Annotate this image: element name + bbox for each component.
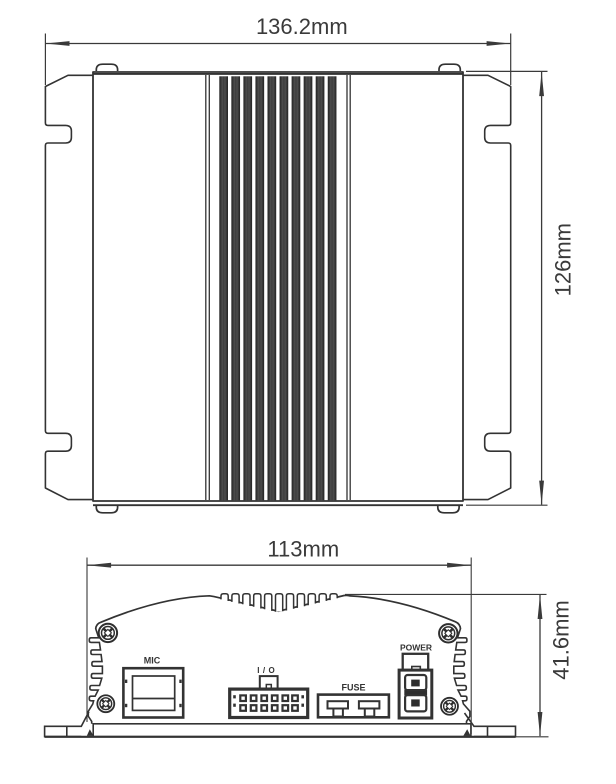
svg-text:I / O: I / O: [257, 666, 275, 675]
svg-text:113mm: 113mm: [267, 537, 339, 562]
svg-text:126mm: 126mm: [551, 223, 576, 296]
svg-text:MIC: MIC: [144, 656, 161, 666]
svg-text:136.2mm: 136.2mm: [256, 14, 348, 39]
svg-text:41.6mm: 41.6mm: [549, 600, 574, 679]
svg-text:FUSE: FUSE: [341, 683, 365, 693]
svg-text:POWER: POWER: [400, 643, 432, 653]
